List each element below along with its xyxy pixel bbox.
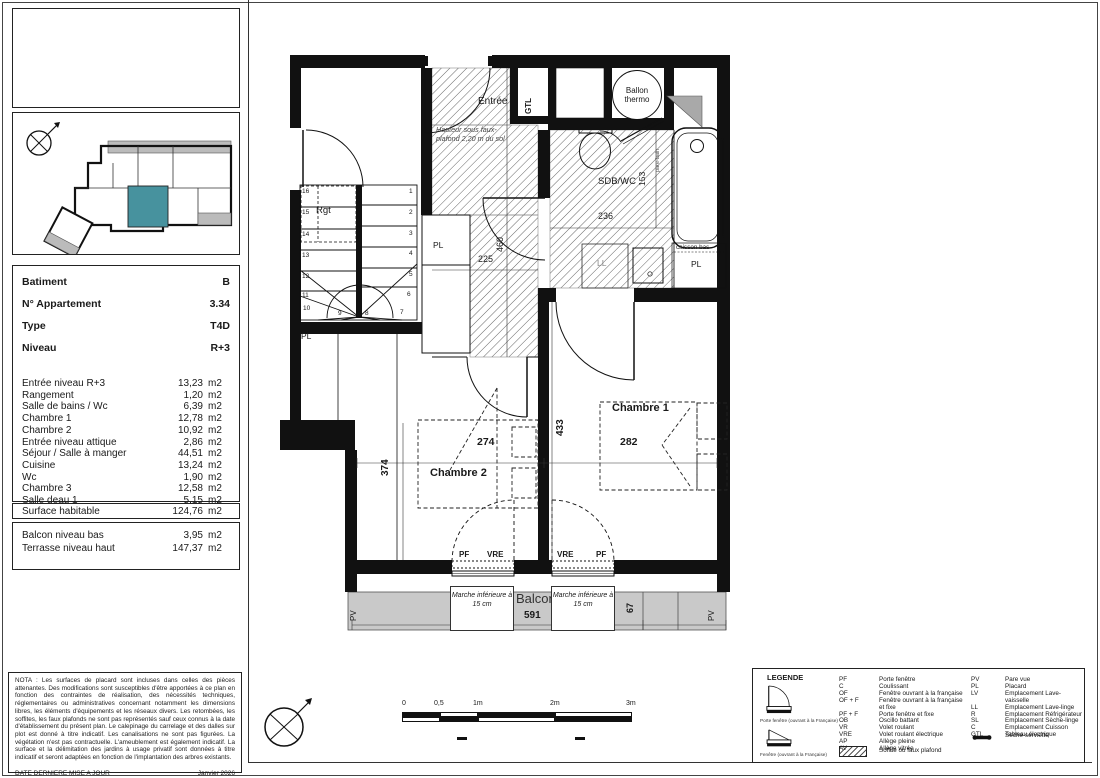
window-icon <box>765 728 793 750</box>
stair-step-number: 6 <box>407 291 411 298</box>
room-label-balcon: Balcon <box>516 591 556 606</box>
stair-step-number: 8 <box>365 310 369 317</box>
legend-row: PV Pare vue <box>971 677 1083 684</box>
placard-label-1: PL <box>433 240 443 250</box>
dim-balcon-end: 67 <box>625 591 635 613</box>
stair-step-number: 14 <box>302 231 309 238</box>
scale-bar-segments <box>402 712 632 722</box>
legend-row: OF + F Fenêtre ouvrant à la française et… <box>839 698 969 712</box>
stair-step-number: 10 <box>303 305 310 312</box>
legend-row-radiator: Sèche-serviette <box>971 733 1083 745</box>
scale-tick-1m: 1m <box>473 700 483 707</box>
legend-row-soffite: Soffite ou faux plafond <box>839 746 969 760</box>
legend-code: SL <box>971 718 1005 725</box>
dim-sdb-height: 153 <box>637 162 647 186</box>
stair-step-number: 9 <box>338 310 342 317</box>
legend-desc: Soffite ou faux plafond <box>879 746 969 760</box>
legend-desc: Emplacement Lave-vaisselle <box>1005 691 1083 705</box>
stair-step-number: 16 <box>302 188 309 195</box>
window-icon-caption: Fenêtre (ouvrant à la Française) <box>760 752 827 757</box>
dim-balcon-width: 591 <box>524 610 541 621</box>
caisson-bas-label: caisson bas <box>676 244 709 251</box>
legend-desc: Sèche-serviette <box>1005 733 1083 745</box>
placard-label-3: PL <box>691 259 701 269</box>
scale-mark <box>575 737 585 740</box>
window-label-vre-right: VRE <box>557 550 573 559</box>
stair-step-number: 4 <box>409 250 413 257</box>
pare-bain-label: pare-bain <box>655 132 661 172</box>
room-label-chambre1: Chambre 1 <box>612 402 669 414</box>
stair-step-number: 2 <box>409 209 413 216</box>
dim-corridor-height: 433 <box>555 406 566 436</box>
compass-icon <box>265 698 312 746</box>
room-label-gtl: GTL <box>524 76 533 114</box>
window-label-pf-left: PF <box>459 550 469 559</box>
legend-title: LEGENDE <box>767 673 803 682</box>
soffite-hatch-swatch <box>839 746 879 760</box>
scale-tick-2m: 2m <box>550 700 560 707</box>
legend-box: LEGENDE Porte fenêtre (ouvrant à la Fran… <box>752 668 1085 763</box>
room-label-rangement: Rgt <box>316 205 331 216</box>
room-label-entree: Entrée <box>478 96 507 107</box>
legend-code: PF <box>839 677 879 684</box>
stair-step-number: 5 <box>409 271 413 278</box>
ballon-thermo-text: Ballon thermo <box>613 86 661 104</box>
legend-desc: Fenêtre ouvrant à la française et fixe <box>879 698 969 712</box>
stair-step-number: 13 <box>302 252 309 259</box>
pare-vue-label-left: PV <box>349 599 358 621</box>
dim-entree-width: 225 <box>478 254 493 264</box>
dim-sdb-width: 236 <box>598 211 613 221</box>
legend-column-2: PV Pare vue PL Placard LV Emplacement La… <box>971 677 1083 739</box>
water-heater-label: Ballon thermo <box>612 70 662 120</box>
window-label-vre-left: VRE <box>487 550 503 559</box>
room-label-chambre2: Chambre 2 <box>430 467 487 479</box>
dim-chambre1-width: 282 <box>620 436 638 448</box>
scale-tick-05: 0,5 <box>434 700 444 707</box>
legend-code: LL <box>971 705 1005 712</box>
dim-chambre2-height: 374 <box>380 446 391 476</box>
radiator-icon <box>971 733 1005 745</box>
scale-mark <box>457 737 467 740</box>
dim-chambre2-width: 274 <box>477 436 495 448</box>
step-note-left: Marche inférieure à 15 cm <box>450 586 514 631</box>
furniture-chambre2 <box>418 388 538 508</box>
dim-entree-height: 460 <box>495 224 505 252</box>
bathtub <box>672 128 723 248</box>
window-label-pf-right: PF <box>596 550 606 559</box>
plan-sheet: Batiment B N° Appartement 3.34 Type T4D … <box>0 0 1100 778</box>
washer-label: LL <box>597 258 606 268</box>
legend-column-1: PF Porte fenêtre C Coulissant OF Fenêtre… <box>839 677 969 753</box>
scale-tick-3m: 3m <box>626 700 636 707</box>
step-note-right: Marche inférieure à 15 cm <box>551 586 615 631</box>
scale-tick-0: 0 <box>402 700 406 707</box>
stair-step-number: 3 <box>409 230 413 237</box>
stair-step-number: 1 <box>409 188 413 195</box>
stair-step-number: 12 <box>302 273 309 280</box>
legend-code: OF + F <box>839 698 879 712</box>
ceiling-height-note: Hauteur sous faux-plafond 2,20 m du sol <box>436 125 512 143</box>
scale-bar: 0 0,5 1m 2m 3m <box>402 700 642 748</box>
stair-step-number: 7 <box>400 309 404 316</box>
door-window-icon <box>765 684 793 716</box>
door-icon-caption: Porte fenêtre (ouvrant à la Française) <box>760 718 838 723</box>
legend-row: LV Emplacement Lave-vaisselle <box>971 691 1083 705</box>
legend-code: LV <box>971 691 1005 705</box>
room-label-sdb-wc: SDB/WC <box>598 176 636 187</box>
pare-vue-label-right: PV <box>707 599 716 621</box>
stair-step-number: 15 <box>302 209 309 216</box>
stair-step-number: 11 <box>302 292 309 299</box>
floor-plan-drawing <box>0 0 1100 778</box>
placard-label-2: PL <box>301 331 311 341</box>
